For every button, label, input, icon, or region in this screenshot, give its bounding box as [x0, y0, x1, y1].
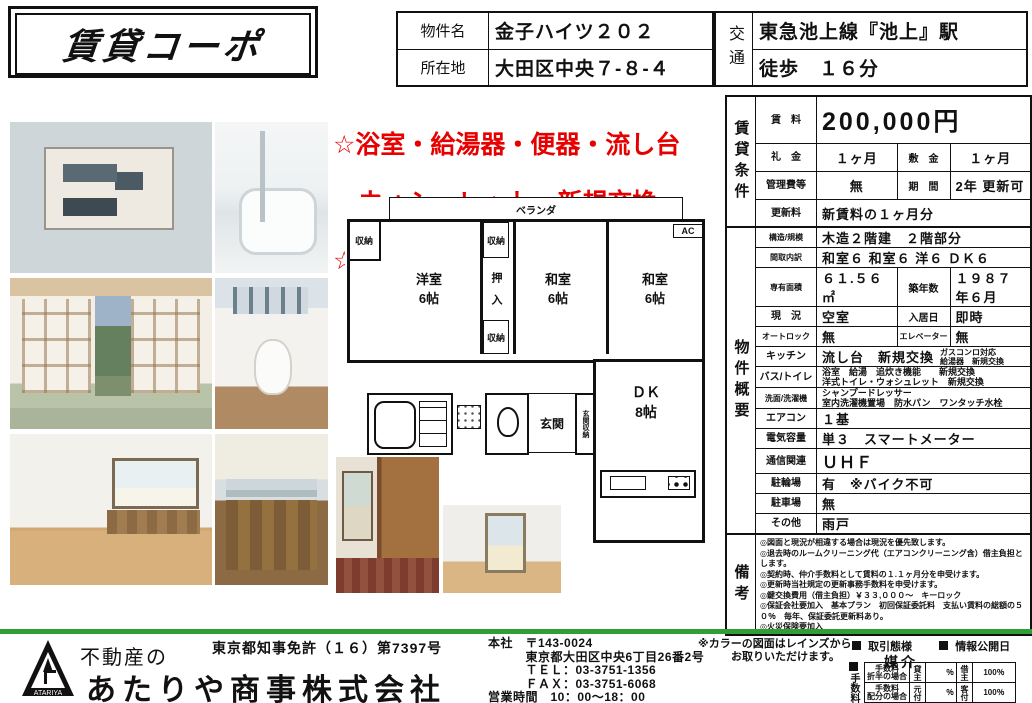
highlight-line-1: ☆浴室・給湯器・便器・流し台	[333, 131, 733, 160]
laundry-value: シャンプードレッサー 室内洗濯機置場 防水パン ワンタッチ水栓	[817, 388, 1030, 408]
status-value: 空室	[817, 307, 897, 326]
kitchen-value: 流し台 新規交換 ガスコンロ対応 給湯器 新規交換	[817, 347, 1030, 366]
transport-walk: 徒歩 １６分	[753, 49, 1028, 86]
rent-value: 200,000円	[817, 97, 1030, 143]
transport-label: 交通	[715, 12, 753, 86]
rental-flyer-page: 賃貸コーポ 物件名 金子ハイツ２０２ 所在地 大田区中央７-８-４ 交通 東急池…	[0, 0, 1032, 703]
photo-bedroom	[443, 505, 561, 593]
fee-percent: ％	[926, 683, 957, 703]
fee-table-block: 手数料 手数料 折半の場合 貸主 ％ 借主 100％ 手数料 配分の場合 元付 …	[846, 662, 1016, 703]
bicycle-value: 有 ※バイク不可	[817, 474, 1030, 493]
renewal-label: 更新料	[756, 200, 817, 226]
overview-section-label: 物件概要	[731, 339, 752, 423]
area-label: 専有面積	[756, 268, 817, 306]
kitchen-counter-shape	[600, 470, 696, 498]
office-line: 東京都大田区中央6丁目26番2号	[488, 651, 733, 665]
structure-label: 構造/規模	[756, 228, 817, 247]
fee-party: 元付	[910, 683, 926, 703]
telecom-label: 通信関連	[756, 449, 817, 473]
deal-type-row: 取引態様 情報公開日	[852, 638, 1022, 654]
kitchen-extra: ガスコンロ対応 給湯器 新規交換	[940, 348, 1004, 366]
autolock-label: オートロック	[756, 327, 817, 346]
transport-line: 東急池上線『池上』駅	[753, 12, 1028, 49]
logo-box: 賃貸コーポ	[8, 6, 318, 78]
age-value: １９８７年６月	[951, 268, 1031, 306]
floorplan-japanese-room1-label: 和室 6帖	[510, 222, 606, 354]
floorplan-toilet-room	[485, 393, 529, 455]
logo-title: 賃貸コーポ	[60, 18, 265, 70]
floorplan-japanese-room2-label: 和室 6帖	[609, 222, 701, 354]
electric-value: 単３ スマートメーター	[817, 429, 1030, 448]
mgmt-fee-label: 管理費等	[756, 172, 817, 199]
movein-value: 即時	[951, 307, 1031, 326]
rent-label: 賃 料	[756, 97, 817, 143]
autolock-value: 無	[817, 327, 897, 346]
floorplan-storage-label: 収納	[483, 222, 509, 258]
floor-plan: ベランダ 収納 洋室 6帖 収納 押 入 収納 和室 6帖 和室 6帖 AC	[345, 197, 717, 457]
floorplan-dk-label: ＤＫ 8帖	[596, 380, 696, 424]
address-label: 所在地	[397, 49, 489, 86]
remark-line: ◎図面と現況が相違する場合は現況を優先致します。	[760, 538, 1026, 549]
area-value: ６１.５６㎡	[817, 268, 897, 306]
bath-label: バス/トイレ	[756, 367, 817, 387]
fee-percent: ％	[926, 663, 957, 683]
atariya-logo-icon: ATARIYA	[20, 638, 76, 700]
floorplan-dk-room: ＤＫ 8帖	[593, 359, 705, 543]
office-line: 本社 〒143-0024	[488, 637, 733, 651]
floorplan-storage-label: 収納	[483, 320, 509, 354]
parking-label: 駐車場	[756, 494, 817, 513]
aircon-label: エアコン	[756, 409, 817, 428]
info-panel: 賃貸条件 賃 料 200,000円 礼 金 １ヶ月 敷 金 １ヶ月 管理費等 無…	[725, 95, 1032, 636]
key-money-value: １ヶ月	[817, 144, 897, 171]
sink-icon	[610, 476, 646, 490]
office-line: ＦＡＸ：03-3751-6068	[488, 678, 733, 692]
info-date-label: 情報公開日	[955, 641, 1010, 653]
kitchen-label: キッチン	[756, 347, 817, 366]
washstand-shape	[419, 401, 447, 447]
property-table: 物件名 金子ハイツ２０２ 所在地 大田区中央７-８-４	[396, 11, 714, 87]
toilet-shape	[497, 407, 519, 437]
license-text: 東京都知事免許（１６）第7397号	[212, 638, 442, 658]
key-money-label: 礼 金	[756, 144, 817, 171]
section-conditions: 賃貸条件 賃 料 200,000円 礼 金 １ヶ月 敷 金 １ヶ月 管理費等 無…	[727, 97, 1030, 228]
black-square-icon	[852, 641, 861, 650]
fee-percent: 100％	[973, 683, 1016, 703]
layout-label: 間取内訳	[756, 248, 817, 267]
telecom-value: ＵＨＦ	[817, 449, 1030, 473]
status-label: 現 況	[756, 307, 817, 326]
floorplan-ac-label: AC	[673, 224, 703, 238]
laundry-label: 洗面/洗濯機	[756, 388, 817, 408]
photo-toilet	[215, 278, 328, 429]
electric-label: 電気容量	[756, 429, 817, 448]
renewal-value: 新賃料の１ヶ月分	[817, 200, 1030, 226]
floorplan-entrance-label: 玄関	[527, 393, 577, 453]
floorplan-entrance-storage-label: 玄関収納	[575, 393, 595, 455]
address-value: 大田区中央７-８-４	[489, 49, 714, 86]
fee-party: 貸主	[910, 663, 926, 683]
transport-table: 交通 東急池上線『池上』駅 徒歩 １６分	[714, 11, 1028, 87]
structure-value: 木造２階建 ２階部分	[817, 228, 1030, 247]
black-square-icon	[849, 662, 858, 671]
elevator-label: エレベーター	[897, 327, 951, 346]
bicycle-label: 駐輪場	[756, 474, 817, 493]
floorplan-bathroom	[367, 393, 453, 455]
office-line: ＴＥＬ：03-3751-1356	[488, 664, 733, 678]
remark-line: ◎保証会社要加入 基本プラン 初回保証委託料 支払い賃料の総額の５０％ 毎年、保…	[760, 601, 1026, 622]
term-label: 期 間	[897, 172, 951, 199]
remark-line: ◎更新時当社規定の更新事務手数料を申受けます。	[760, 580, 1026, 591]
fee-table: 手数料 折半の場合 貸主 ％ 借主 100％ 手数料 配分の場合 元付 ％ 客付…	[864, 662, 1016, 703]
stove-icon	[668, 476, 690, 490]
remark-line: ◎契約時、仲介手数料として賃料の１.１ヶ月分を申受けます。	[760, 570, 1026, 581]
floorplan-storage-label: 収納	[347, 219, 381, 261]
washer-pan-shape	[457, 405, 481, 429]
parking-value: 無	[817, 494, 1030, 513]
office-line: 営業時間 10：00～18：00	[488, 691, 733, 703]
other-value: 雨戸	[817, 514, 1030, 533]
fee-party: 客付	[957, 683, 973, 703]
bath-value: 浴室 給湯 追炊き機能 新規交換 洋式トイレ・ウォシュレット 新規交換	[817, 367, 1030, 387]
layout-value: 和室６ 和室６ 洋６ ＤＫ６	[817, 248, 1030, 267]
section-overview: 物件概要 構造/規模 木造２階建 ２階部分 間取内訳 和室６ 和室６ 洋６ ＤＫ…	[727, 228, 1030, 535]
bathtub-shape	[374, 401, 416, 449]
remark-line: ◎鍵交換費用（借主負担）￥３３,０００～ キーロック	[760, 591, 1026, 602]
aircon-value: １基	[817, 409, 1030, 428]
photo-kitchen-counter	[215, 434, 328, 585]
black-square-icon	[939, 641, 948, 650]
conditions-section-label: 賃貸条件	[731, 120, 752, 204]
other-label: その他	[756, 514, 817, 533]
photo-japanese-room	[10, 278, 212, 429]
fee-case: 手数料 折半の場合	[865, 663, 910, 683]
floorplan-western-room-label: 洋室 6帖	[378, 222, 480, 354]
deposit-value: １ヶ月	[951, 144, 1031, 171]
head-office-block: 本社 〒143-0024 東京都大田区中央6丁目26番2号 ＴＥＬ：03-375…	[488, 637, 733, 703]
photo-hallway	[336, 457, 439, 593]
movein-label: 入居日	[897, 307, 951, 326]
elevator-value: 無	[951, 327, 1031, 346]
property-name-value: 金子ハイツ２０２	[489, 12, 714, 49]
age-label: 築年数	[897, 268, 951, 306]
floorplan-closet-label: 押 入	[485, 260, 507, 316]
property-name-label: 物件名	[397, 12, 489, 49]
fee-percent: 100％	[973, 663, 1016, 683]
remarks-section-label: 備考	[731, 564, 752, 606]
color-note: ※カラーの図面はレインズから お取りいただけます。	[698, 638, 851, 664]
section-remarks: 備考 ◎図面と現況が相違する場合は現況を優先致します。 ◎退去時のルームクリーニ…	[727, 535, 1030, 636]
deposit-label: 敷 金	[897, 144, 951, 171]
photo-bathroom	[215, 122, 328, 273]
svg-text:ATARIYA: ATARIYA	[34, 690, 63, 697]
fee-label: 手数料	[846, 673, 861, 703]
photo-kitchen-room	[10, 434, 212, 585]
floorplan-balcony-label: ベランダ	[389, 197, 683, 221]
remark-line: ◎退去時のルームクリーニング代（エアコンクリーニング含）借主負担とします。	[760, 549, 1026, 570]
photo-exterior	[10, 122, 212, 273]
company-name: あたりや商事株式会社	[86, 665, 446, 703]
mgmt-fee-value: 無	[817, 172, 897, 199]
term-value: 2年 更新可	[951, 172, 1031, 199]
footer-divider	[0, 629, 1032, 634]
fee-case: 手数料 配分の場合	[865, 683, 910, 703]
fee-party: 借主	[957, 663, 973, 683]
kitchen-main: 流し台 新規交換	[822, 347, 934, 366]
